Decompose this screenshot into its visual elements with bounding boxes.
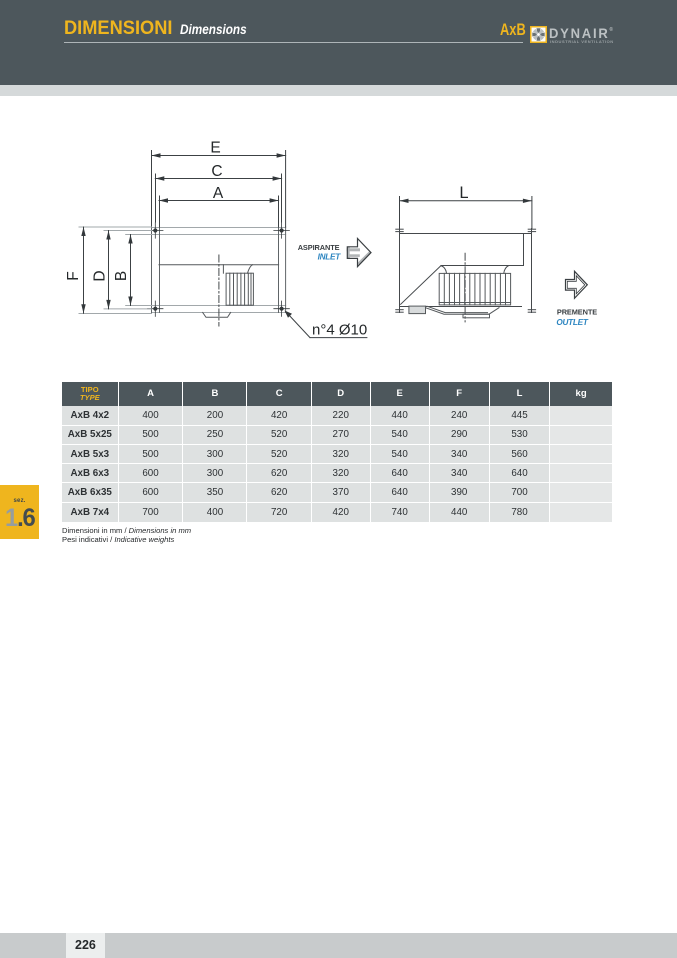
svg-text:C: C — [211, 163, 222, 180]
svg-text:F: F — [65, 271, 82, 280]
svg-text:ASPIRANTE: ASPIRANTE — [298, 243, 340, 252]
svg-text:OUTLET: OUTLET — [556, 318, 588, 327]
svg-text:B: B — [113, 271, 130, 281]
svg-text:L: L — [459, 184, 468, 202]
svg-text:A: A — [213, 185, 224, 202]
svg-text:n°4 Ø10: n°4 Ø10 — [312, 322, 367, 339]
svg-text:E: E — [210, 140, 220, 157]
svg-text:INLET: INLET — [318, 253, 342, 262]
svg-text:PREMENTE: PREMENTE — [557, 308, 597, 317]
svg-text:D: D — [92, 270, 109, 281]
